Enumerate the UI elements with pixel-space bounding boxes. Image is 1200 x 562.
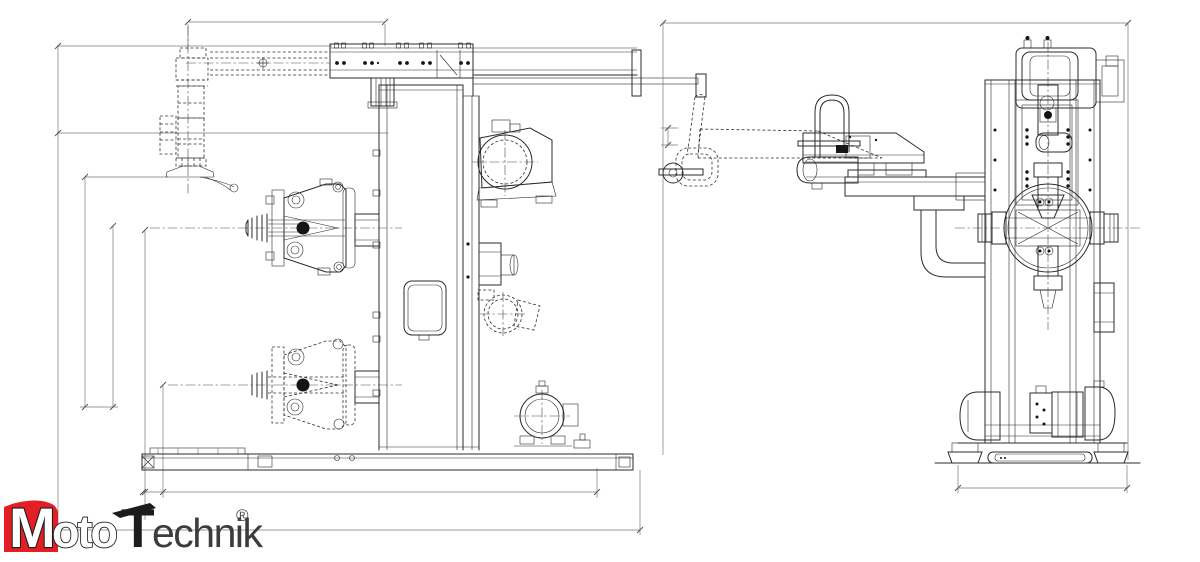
upper-motor bbox=[472, 120, 556, 207]
bottom-drive bbox=[960, 381, 1115, 440]
logo-text-m: M bbox=[9, 496, 56, 559]
left-view bbox=[57, 22, 706, 535]
overhead-beam bbox=[186, 43, 706, 108]
column-door bbox=[404, 281, 446, 335]
right-view-base bbox=[935, 443, 1140, 463]
logo-text-oto: oto bbox=[52, 506, 116, 557]
main-column bbox=[373, 85, 479, 450]
beam-bolts bbox=[335, 43, 471, 65]
pipe bbox=[921, 210, 985, 277]
right-view bbox=[659, 23, 1140, 493]
dimension-ticks bbox=[55, 19, 1131, 533]
technical-drawing-page: M oto T echnik ® bbox=[0, 0, 1200, 562]
lower-chuck bbox=[168, 339, 402, 429]
pump-motor bbox=[514, 381, 590, 448]
technical-drawing: M oto T echnik ® bbox=[0, 0, 1200, 562]
side-box bbox=[1094, 283, 1114, 332]
door-handle bbox=[419, 335, 429, 340]
logo-registered-mark: ® bbox=[236, 506, 249, 525]
swing-arm bbox=[797, 95, 985, 277]
left-view-base bbox=[142, 448, 633, 470]
front-carriage bbox=[994, 85, 1092, 218]
logo: M oto T echnik ® bbox=[4, 496, 264, 559]
chuck-hub bbox=[297, 222, 310, 235]
front-column bbox=[985, 80, 1100, 443]
hidden-motor bbox=[478, 290, 540, 336]
side-pump-box bbox=[479, 243, 518, 285]
vertical-arm bbox=[160, 26, 238, 196]
arm-foot bbox=[166, 166, 214, 177]
carriage-bolts bbox=[994, 128, 1092, 191]
